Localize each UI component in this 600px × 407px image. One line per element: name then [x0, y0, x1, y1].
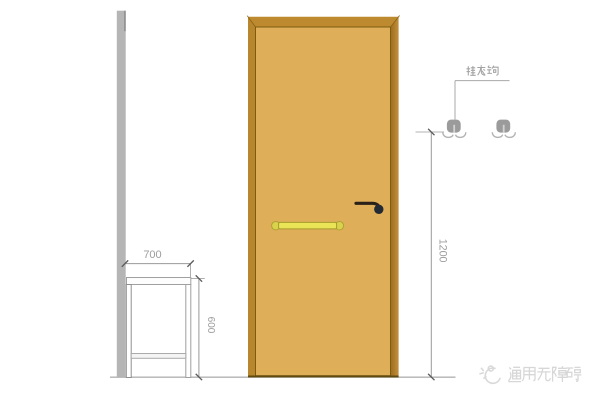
svg-text:700: 700 [143, 249, 161, 261]
svg-text:600: 600 [205, 317, 216, 334]
svg-text:1200: 1200 [437, 239, 449, 263]
